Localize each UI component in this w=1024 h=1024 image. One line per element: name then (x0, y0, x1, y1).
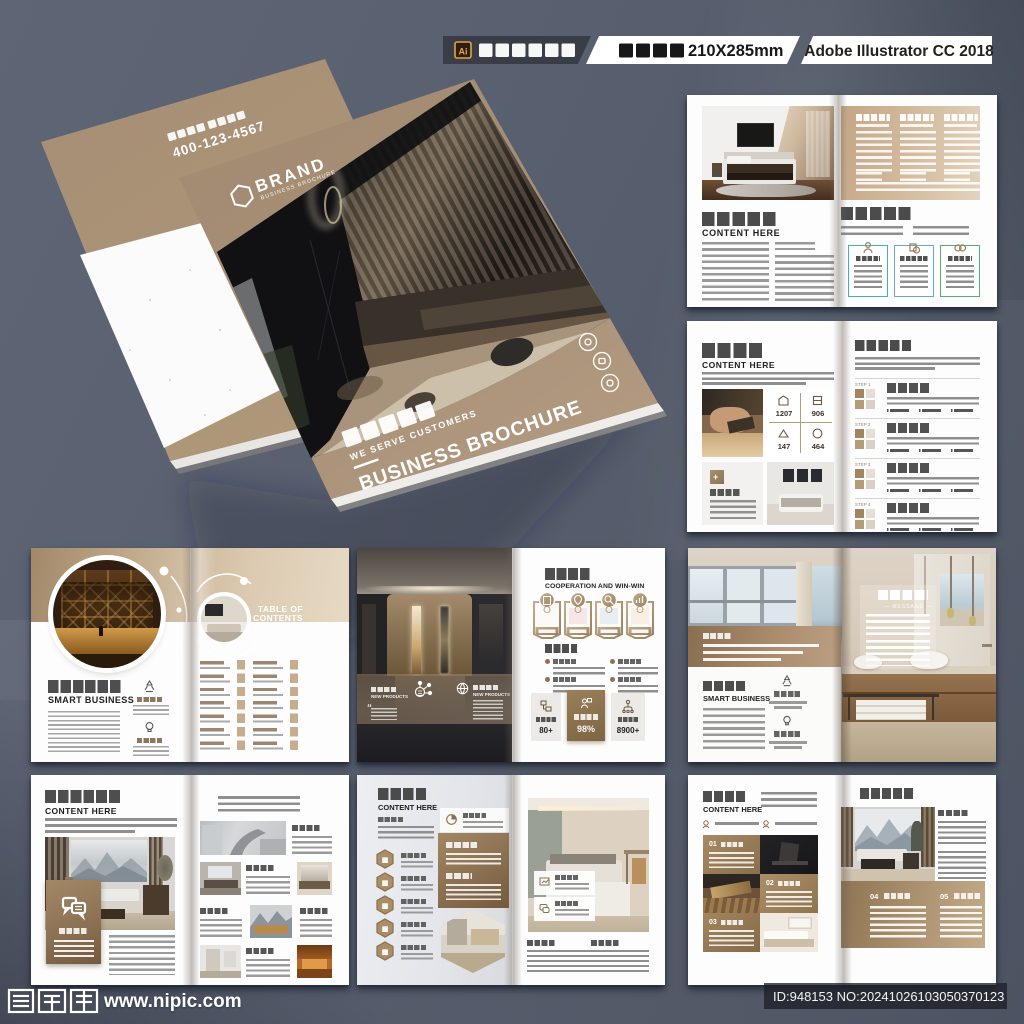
svg-text:Adobe Illustrator CC 2018: Adobe Illustrator CC 2018 (804, 43, 994, 60)
svg-text:▩: ▩ (382, 880, 389, 887)
svg-text:▩: ▩ (382, 857, 389, 864)
svg-text:▩: ▩ (382, 949, 389, 956)
svg-text:▩: ▩ (382, 903, 389, 910)
svg-text:210X285mm: 210X285mm (688, 42, 783, 60)
svg-text:▩: ▩ (382, 926, 389, 933)
